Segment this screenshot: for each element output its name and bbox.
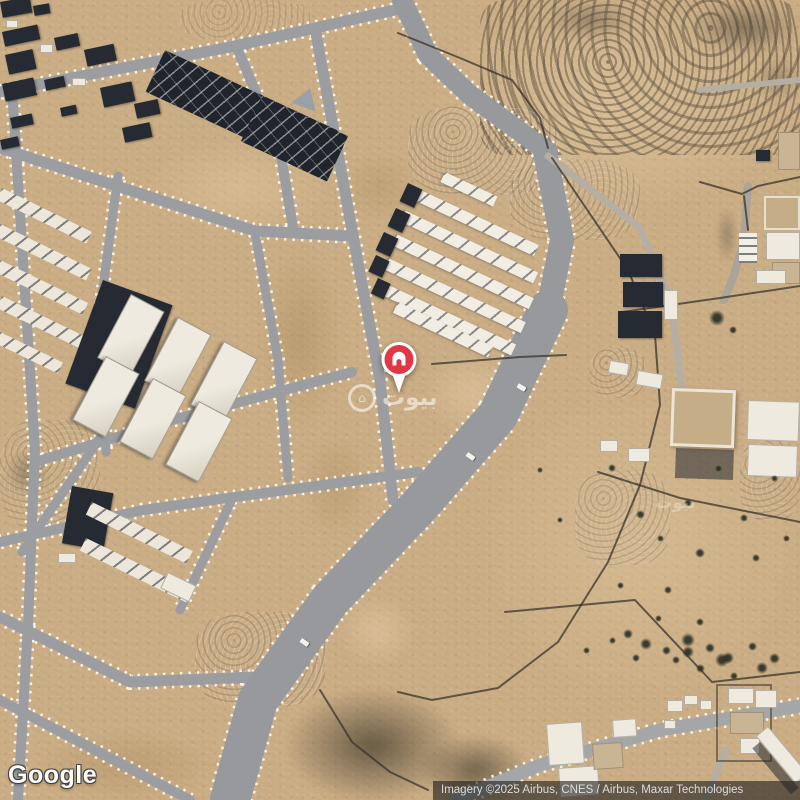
map-canvas[interactable]: ⌂ بيوت بيوت Google Imagery ©2025 Airbus,…: [0, 0, 800, 800]
vehicle: [299, 638, 309, 647]
location-marker-pin[interactable]: [375, 337, 423, 395]
attribution-bar: Imagery ©2025 Airbus, CNES / Airbus, Max…: [433, 781, 800, 800]
attribution-text: Imagery ©2025 Airbus, CNES / Airbus, Max…: [441, 784, 743, 796]
vehicle: [465, 452, 475, 461]
vehicles-layer: [0, 0, 800, 800]
google-logo[interactable]: Google: [8, 761, 97, 790]
vehicle: [516, 383, 526, 392]
home-pin-icon: [375, 337, 423, 395]
